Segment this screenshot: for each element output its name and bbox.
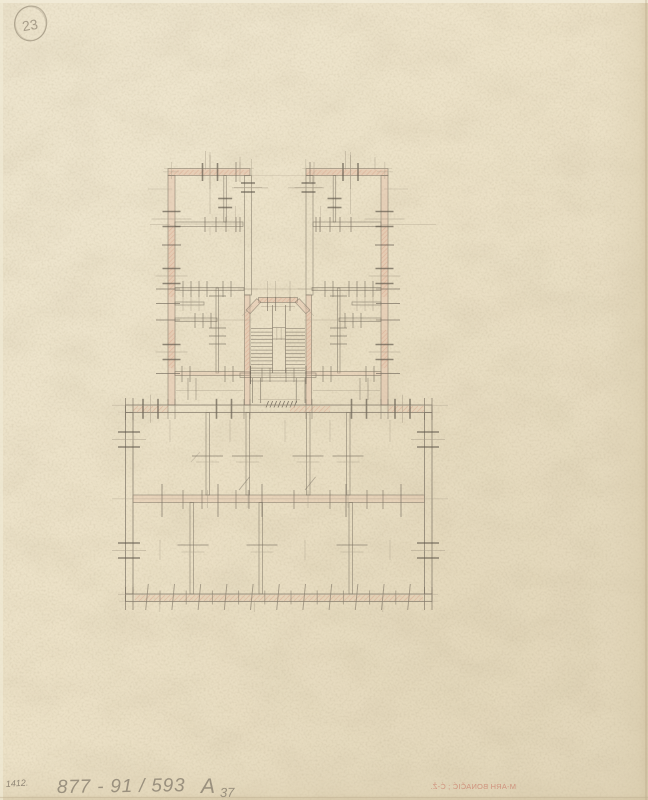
svg-text:A: A — [199, 775, 215, 798]
svg-text:23: 23 — [21, 16, 39, 34]
svg-text:37: 37 — [220, 785, 235, 800]
svg-text:877 - 91 / 593: 877 - 91 / 593 — [57, 775, 186, 798]
svg-text:1412.: 1412. — [5, 777, 28, 789]
svg-text:M-ARH BONAČIĆ ; Ć-Ž.: M-ARH BONAČIĆ ; Ć-Ž. — [430, 782, 516, 791]
